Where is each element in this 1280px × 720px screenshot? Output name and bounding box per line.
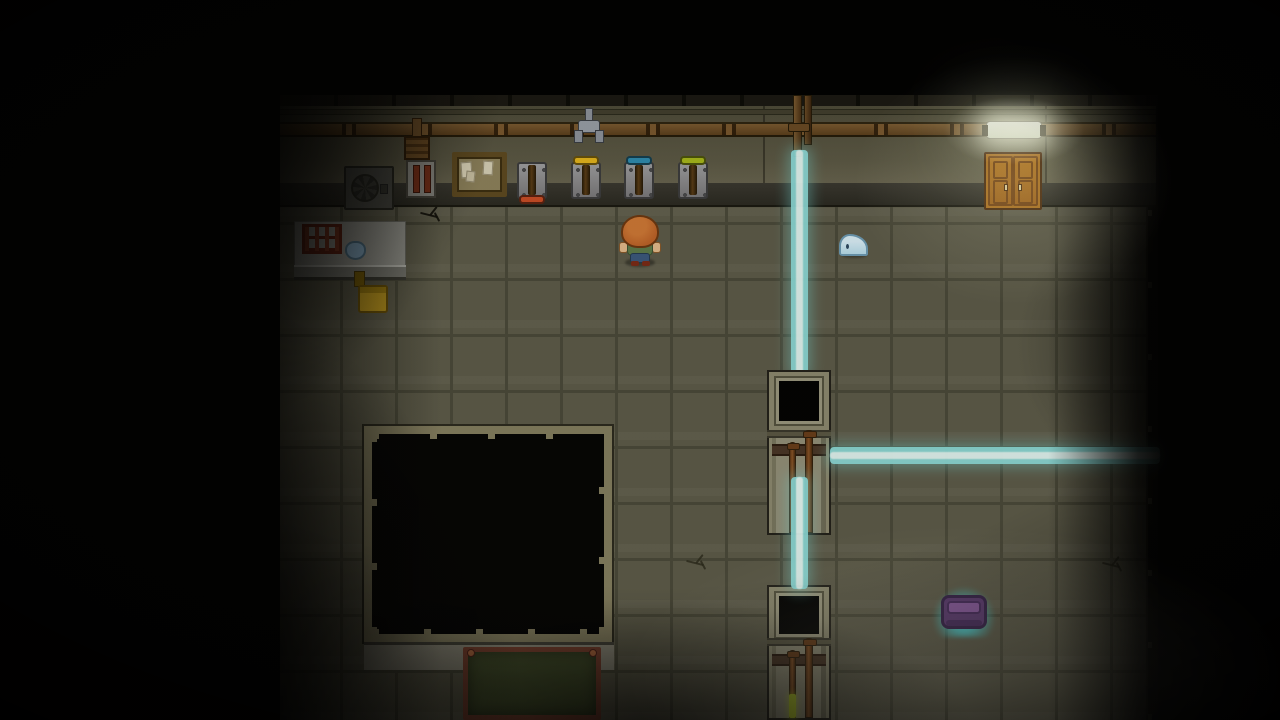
- glowing-purple-couch[interactable]: [941, 595, 987, 629]
- cabinet-knob: [1018, 184, 1022, 191]
- north-wall: [280, 95, 1156, 207]
- wall-seam: [763, 106, 765, 183]
- ac-unit[interactable]: [344, 166, 394, 210]
- panel-pipe: [412, 118, 422, 138]
- player-shoe: [642, 261, 650, 266]
- lever-slot: [582, 165, 590, 195]
- glowing-goo-pipe: [789, 694, 796, 718]
- chalkboard[interactable]: [463, 647, 601, 720]
- dark-window: [776, 593, 822, 637]
- laser-beam-horizontal: [830, 447, 1160, 464]
- yellow-chair[interactable]: [358, 285, 388, 313]
- slime-eye: [846, 244, 849, 249]
- dark-window: [776, 378, 822, 424]
- slime-creature[interactable]: [839, 234, 868, 259]
- pillar-divider: [767, 430, 831, 438]
- bulletin-board[interactable]: [452, 152, 507, 197]
- player-shoe: [631, 261, 639, 266]
- lever-row: [517, 156, 727, 206]
- lever-handle: [626, 156, 652, 165]
- wall-top-edge: [280, 95, 1156, 106]
- floor-crack: [418, 204, 450, 228]
- pinned-paper: [483, 161, 494, 176]
- floor-crack: [684, 552, 716, 576]
- lever-slot: [635, 165, 643, 195]
- vertical-pipe: [804, 95, 812, 145]
- valve-flange: [574, 130, 583, 143]
- lever-slot: [689, 165, 697, 195]
- pipe-elbow: [788, 123, 810, 132]
- pipe-panel: [406, 160, 436, 198]
- unlit-room-edge-ticks: [372, 629, 604, 634]
- couch-cushion: [947, 601, 981, 614]
- fluorescent-lamp: [986, 121, 1042, 139]
- blue-flask[interactable]: [345, 241, 366, 260]
- cabinet-knob: [1004, 184, 1008, 191]
- lever-handle: [573, 156, 599, 165]
- cabinet-door-left: [988, 156, 1013, 206]
- lever-switch-yellow[interactable]: [571, 162, 601, 199]
- red-bottle-rack[interactable]: [302, 224, 342, 254]
- ac-hatch: [380, 184, 388, 194]
- couch-base: [946, 620, 982, 626]
- unlit-room-edge-ticks: [372, 434, 377, 634]
- lever-switch-red[interactable]: [517, 162, 547, 199]
- game-scene: [0, 0, 1280, 720]
- pillar-pipe: [805, 638, 813, 718]
- player-hair: [621, 215, 659, 248]
- valve-flange: [595, 130, 604, 143]
- lever-switch-green[interactable]: [678, 162, 708, 199]
- unlit-room-edge-ticks: [372, 434, 604, 439]
- pillar-lower: [772, 646, 826, 718]
- player-character[interactable]: [619, 215, 661, 267]
- lever-handle: [680, 156, 706, 165]
- unlit-room: [364, 426, 612, 642]
- wooden-cabinet[interactable]: [984, 152, 1042, 210]
- lab-table-front: [294, 265, 406, 280]
- pinned-paper: [465, 171, 475, 183]
- laser-beam-vertical: [791, 477, 808, 589]
- upper-pipe: [280, 109, 1156, 115]
- lever-switch-blue[interactable]: [624, 162, 654, 199]
- pipe-valve[interactable]: [574, 108, 604, 144]
- fan-icon: [351, 174, 379, 202]
- unlit-room-edge-ticks: [599, 434, 604, 634]
- pipe-bracket: [404, 136, 430, 160]
- wall-seam: [1045, 106, 1047, 183]
- slime-body: [839, 234, 868, 256]
- cabinet-door-right: [1013, 156, 1038, 206]
- lever-slot: [528, 165, 536, 195]
- pillar-divider: [767, 638, 831, 646]
- lever-handle: [519, 195, 545, 204]
- pipe-column-south: [767, 585, 831, 720]
- floor-crack: [1100, 554, 1132, 578]
- laser-beam-vertical: [791, 150, 808, 375]
